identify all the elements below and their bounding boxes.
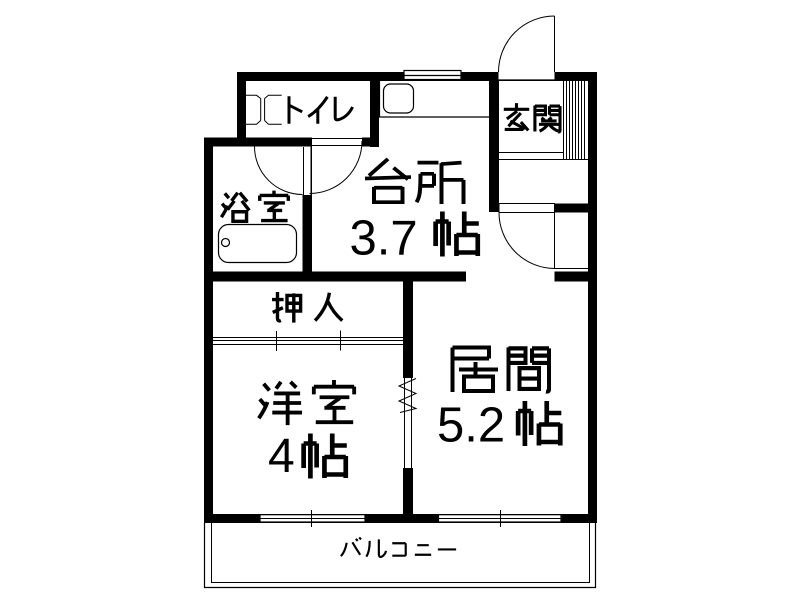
svg-text:5.2: 5.2 [437,399,505,453]
svg-text:3.7: 3.7 [350,212,418,266]
svg-text:4: 4 [268,430,295,483]
